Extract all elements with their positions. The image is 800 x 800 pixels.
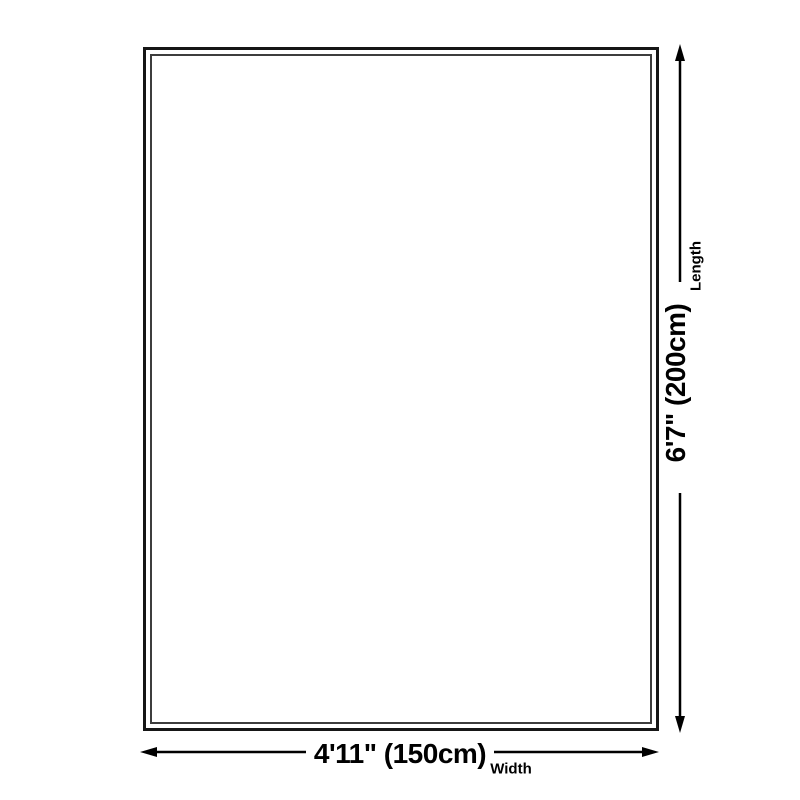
length-dimension-label: Length — [688, 241, 705, 291]
width-dimension-value: 4'11" (150cm) — [314, 738, 486, 770]
product-frame-inner — [150, 54, 652, 724]
product-frame — [143, 47, 659, 731]
width-arrowhead-right-icon — [642, 747, 659, 757]
dimension-diagram: 4'11" (150cm) Width 6'7" (200cm) Length — [0, 0, 800, 800]
width-arrowhead-left-icon — [140, 747, 157, 757]
length-arrowhead-up-icon — [675, 44, 685, 61]
width-dimension-label: Width — [490, 761, 532, 778]
length-arrowhead-down-icon — [675, 716, 685, 733]
length-dimension-value: 6'7" (200cm) — [660, 304, 692, 463]
